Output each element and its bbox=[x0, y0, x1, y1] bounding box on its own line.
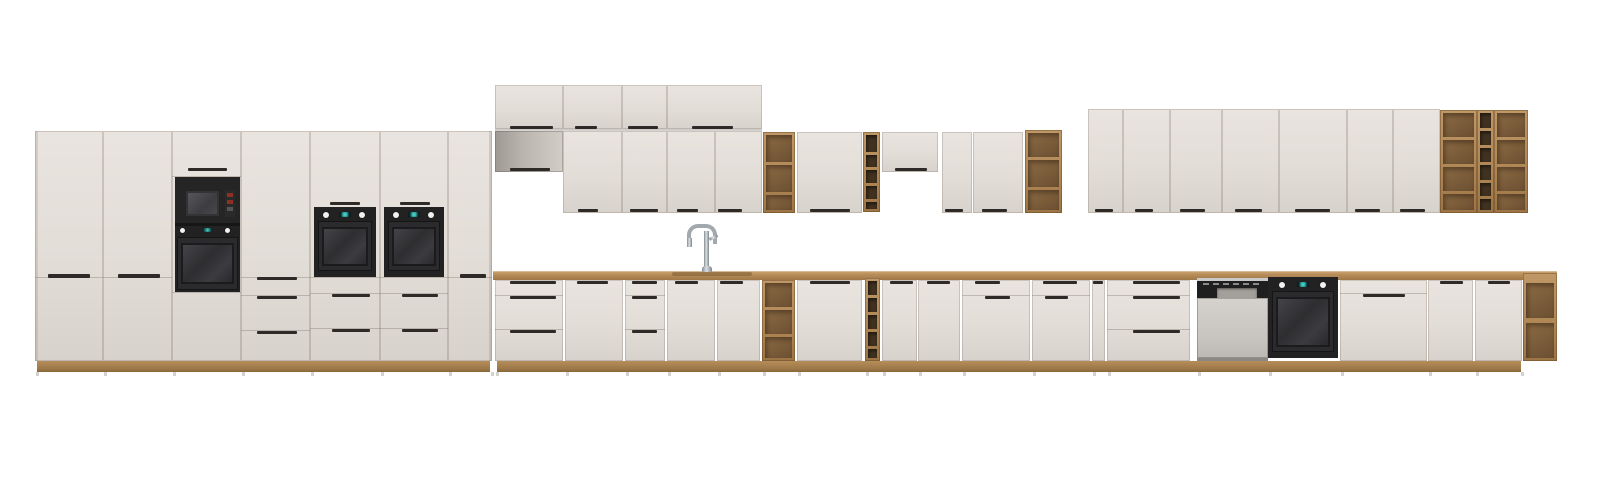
cabinet-foot bbox=[1093, 372, 1096, 376]
cabinet-handle bbox=[510, 296, 556, 299]
front-seam bbox=[172, 292, 241, 293]
base-narrow-cabinet bbox=[1092, 280, 1105, 361]
wall-wine-rack-compartment bbox=[866, 170, 877, 183]
wall-cabinet-1 bbox=[563, 131, 622, 213]
faucet-spout-tip bbox=[687, 238, 692, 247]
cabinet-handle bbox=[632, 296, 657, 299]
cabinet-handle bbox=[118, 274, 160, 278]
oven-display bbox=[203, 228, 212, 232]
oven-knob-right bbox=[225, 228, 230, 233]
wall-short-cabinet-1 bbox=[495, 131, 563, 172]
cabinet-handle bbox=[578, 209, 598, 212]
wall-wine-rack-compartment bbox=[866, 202, 877, 209]
cabinet-foot bbox=[1108, 372, 1111, 376]
cabinet-foot bbox=[311, 372, 314, 376]
tall-oven-tower-1-oven-display bbox=[339, 212, 351, 217]
base-wine-rack-compartment bbox=[868, 281, 877, 295]
cabinet-foot bbox=[1341, 372, 1344, 376]
tall-oven-tower-1-oven-window bbox=[322, 227, 368, 266]
wall-top-box-3 bbox=[622, 85, 667, 129]
cabinet-handle bbox=[257, 277, 297, 280]
wall-open-shelf-1-compartment bbox=[766, 165, 792, 192]
wall-short-cabinet-2 bbox=[882, 132, 938, 172]
base-cabinet-2 bbox=[797, 280, 862, 361]
dishwasher-door bbox=[1197, 298, 1268, 358]
cabinet-handle bbox=[257, 331, 297, 334]
cabinet-handle bbox=[927, 281, 950, 284]
cabinet-handle bbox=[1363, 294, 1405, 297]
cabinet-handle bbox=[332, 294, 370, 297]
tall-oven-tower-2-oven-knob-left bbox=[393, 212, 399, 218]
base-end-open-shelf-compartment bbox=[1526, 283, 1554, 318]
cabinet-foot bbox=[668, 372, 671, 376]
cabinet-handle bbox=[1133, 296, 1180, 299]
base-cabinet-3 bbox=[882, 280, 917, 361]
cabinet-handle bbox=[810, 281, 850, 284]
oven-window bbox=[181, 243, 234, 284]
cabinet-handle bbox=[632, 281, 657, 284]
cabinet-handle bbox=[188, 168, 227, 171]
wall-top-box-1 bbox=[495, 85, 563, 129]
cabinet-handle bbox=[460, 274, 486, 278]
sink-inset bbox=[672, 272, 752, 276]
wall-open-shelf-2-compartment bbox=[1028, 160, 1059, 187]
wall-shelf-wine-combo-column-1-compartment bbox=[1443, 140, 1474, 164]
faucet-base bbox=[702, 266, 712, 272]
wall-top-box-4 bbox=[667, 85, 762, 129]
wall-open-shelf-2-compartment bbox=[1028, 133, 1059, 157]
wall-open-shelf-2-compartment bbox=[1028, 190, 1059, 210]
cabinet-handle bbox=[1355, 209, 1380, 212]
built-in-oven-display bbox=[1297, 282, 1309, 287]
wall-shelf-wine-combo-column-3-compartment bbox=[1497, 113, 1525, 137]
wall-shelf-wine-combo-column-2-compartment bbox=[1480, 148, 1491, 162]
cabinet-handle bbox=[1045, 296, 1068, 299]
wall-shelf-wine-combo-column-1-compartment bbox=[1443, 113, 1474, 137]
cabinet-handle bbox=[982, 209, 1007, 212]
wall-wine-rack-compartment bbox=[866, 135, 877, 152]
wall-cabinet-6 bbox=[942, 132, 972, 213]
cabinet-handle bbox=[718, 209, 742, 212]
wall-cabinet-10 bbox=[1170, 109, 1222, 213]
wall-shelf-wine-combo-column-1-compartment bbox=[1443, 194, 1474, 210]
microwave-divider bbox=[175, 223, 240, 226]
cabinet-handle bbox=[332, 329, 370, 332]
cabinet-handle bbox=[890, 281, 913, 284]
tall-pantry-cabinet-2 bbox=[103, 131, 172, 361]
cabinet-handle bbox=[577, 281, 608, 284]
sink-cabinet-door-right bbox=[717, 280, 760, 361]
plinth-base-run bbox=[497, 361, 1521, 372]
tall-run-right-edge bbox=[489, 131, 492, 361]
front-seam bbox=[310, 277, 380, 278]
cabinet-foot bbox=[36, 372, 39, 376]
cabinet-foot bbox=[718, 372, 721, 376]
cabinet-foot bbox=[883, 372, 886, 376]
cabinet-handle bbox=[1133, 281, 1180, 284]
cabinet-foot bbox=[173, 372, 176, 376]
cabinet-handle bbox=[975, 281, 1000, 284]
wall-shelf-wine-combo-column-2-compartment bbox=[1480, 113, 1491, 128]
cabinet-handle bbox=[675, 281, 698, 284]
cabinet-handle bbox=[1043, 281, 1077, 284]
wall-shelf-wine-combo-column-3-compartment bbox=[1497, 140, 1525, 164]
cabinet-handle bbox=[510, 330, 556, 333]
built-in-oven-window bbox=[1276, 297, 1330, 347]
wall-shelf-wine-combo-column-2-compartment bbox=[1480, 131, 1491, 145]
microwave-button bbox=[227, 200, 233, 204]
cabinet-foot bbox=[242, 372, 245, 376]
cabinet-handle bbox=[1295, 209, 1330, 212]
cabinet-handle bbox=[985, 296, 1010, 299]
cabinet-foot bbox=[798, 372, 801, 376]
cabinet-foot bbox=[1198, 372, 1201, 376]
tall-oven-tower-2-oven-window bbox=[392, 227, 436, 266]
wall-shelf-wine-combo-column-3-compartment bbox=[1497, 167, 1525, 191]
wall-shelf-wine-combo-column-2-compartment bbox=[1480, 183, 1491, 196]
tall-pantry-cabinet-3 bbox=[448, 131, 492, 361]
cabinet-handle bbox=[1488, 281, 1510, 284]
cabinet-foot bbox=[963, 372, 966, 376]
base-wine-rack-compartment bbox=[868, 315, 877, 329]
cabinet-handle bbox=[720, 281, 743, 284]
sink-cabinet-door-left bbox=[667, 280, 715, 361]
plinth-tall-run bbox=[37, 361, 490, 372]
built-in-oven-knob-left bbox=[1279, 282, 1285, 288]
cabinet-handle bbox=[810, 209, 850, 212]
base-cabinet-4 bbox=[918, 280, 960, 361]
front-seam bbox=[380, 277, 448, 278]
wall-open-shelf-1-compartment bbox=[766, 195, 792, 210]
cabinet-foot bbox=[1521, 372, 1524, 376]
base-end-open-shelf-compartment bbox=[1526, 323, 1554, 358]
cabinet-foot bbox=[1269, 372, 1272, 376]
tall-oven-tower-2-oven-display bbox=[408, 212, 420, 217]
cabinet-foot bbox=[763, 372, 766, 376]
cabinet-handle bbox=[1400, 209, 1425, 212]
wall-shelf-wine-combo-column-3-compartment bbox=[1497, 194, 1525, 210]
base-cabinet-1 bbox=[565, 280, 623, 361]
cabinet-handle bbox=[1180, 209, 1205, 212]
wall-open-shelf-1-compartment bbox=[766, 135, 792, 162]
cabinet-handle bbox=[1095, 209, 1113, 212]
wall-top-box-2 bbox=[563, 85, 622, 129]
cabinet-foot bbox=[1429, 372, 1432, 376]
cabinet-handle bbox=[48, 274, 90, 278]
cabinet-foot bbox=[566, 372, 569, 376]
wall-cabinet-3 bbox=[667, 131, 715, 213]
wall-shelf-wine-combo-column-1-compartment bbox=[1443, 167, 1474, 191]
base-open-shelf-compartment bbox=[765, 337, 792, 358]
kitchen-product-render bbox=[0, 0, 1600, 482]
cabinet-handle bbox=[402, 294, 438, 297]
wall-cabinet-2 bbox=[622, 131, 667, 213]
base-drawer-door-unit-2 bbox=[1032, 280, 1090, 361]
cabinet-foot bbox=[449, 372, 452, 376]
microwave-button bbox=[227, 193, 233, 197]
cabinet-handle bbox=[677, 209, 698, 212]
wall-cabinet-8 bbox=[1088, 109, 1123, 213]
base-cabinet-5 bbox=[1428, 280, 1473, 361]
cabinet-handle bbox=[945, 209, 963, 212]
cabinet-handle bbox=[632, 330, 657, 333]
wall-shelf-wine-combo-column-2-compartment bbox=[1480, 165, 1491, 180]
built-in-oven-knob-right bbox=[1320, 282, 1326, 288]
tall-run-left-edge bbox=[35, 131, 38, 361]
cabinet-handle bbox=[402, 329, 438, 332]
cabinet-handle bbox=[510, 281, 556, 284]
cabinet-handle bbox=[1133, 330, 1180, 333]
cabinet-handle bbox=[330, 202, 360, 205]
wall-cabinet-13 bbox=[1347, 109, 1393, 213]
countertop bbox=[493, 271, 1557, 280]
cabinet-handle bbox=[1235, 209, 1262, 212]
base-drawer-unit-1 bbox=[495, 280, 563, 361]
cabinet-foot bbox=[1476, 372, 1479, 376]
cabinet-foot bbox=[1033, 372, 1036, 376]
wall-cabinet-11 bbox=[1222, 109, 1279, 213]
base-open-shelf-compartment bbox=[765, 310, 792, 334]
cabinet-foot bbox=[381, 372, 384, 376]
tall-pantry-cabinet-1 bbox=[35, 131, 103, 361]
base-drawer-unit-2 bbox=[625, 280, 665, 361]
cabinet-foot bbox=[919, 372, 922, 376]
base-cabinet-6 bbox=[1475, 280, 1522, 361]
cabinet-handle bbox=[257, 296, 297, 299]
microwave-button bbox=[227, 207, 233, 211]
cabinet-handle bbox=[630, 209, 658, 212]
wall-cabinet-4 bbox=[715, 131, 762, 213]
dishwasher-panel-dashes bbox=[1203, 283, 1260, 285]
cabinet-foot bbox=[866, 372, 869, 376]
base-wine-rack-compartment bbox=[868, 332, 877, 346]
wall-cabinet-7 bbox=[973, 132, 1023, 213]
tall-cabinet-with-drawers bbox=[241, 131, 310, 361]
cabinet-handle bbox=[1135, 209, 1153, 212]
cabinet-handle bbox=[895, 168, 927, 171]
cabinet-foot bbox=[626, 372, 629, 376]
wall-cabinet-5 bbox=[797, 132, 862, 213]
tall-oven-tower-2-oven-knob-right bbox=[428, 212, 434, 218]
cabinet-handle bbox=[510, 168, 550, 171]
cabinet-foot bbox=[491, 372, 494, 376]
wall-wine-rack-compartment bbox=[866, 155, 877, 167]
base-drawer-unit-3 bbox=[1107, 280, 1190, 361]
wall-cabinet-14 bbox=[1393, 109, 1440, 213]
microwave-window bbox=[186, 191, 219, 216]
wall-wine-rack-compartment bbox=[866, 186, 877, 199]
base-open-shelf-compartment bbox=[765, 283, 792, 307]
wall-cabinet-9 bbox=[1123, 109, 1170, 213]
cabinet-foot bbox=[104, 372, 107, 376]
cabinet-foot bbox=[496, 372, 499, 376]
base-wine-rack-compartment bbox=[868, 349, 877, 358]
cabinet-handle bbox=[1440, 281, 1463, 284]
wall-shelf-wine-combo-column-2-compartment bbox=[1480, 199, 1491, 210]
cabinet-handle bbox=[400, 202, 430, 205]
cabinet-handle bbox=[1093, 281, 1103, 284]
oven-knob-left bbox=[180, 228, 185, 233]
wall-cabinet-12 bbox=[1279, 109, 1347, 213]
base-wine-rack-compartment bbox=[868, 298, 877, 312]
base-drawer-door-unit-1 bbox=[962, 280, 1030, 361]
